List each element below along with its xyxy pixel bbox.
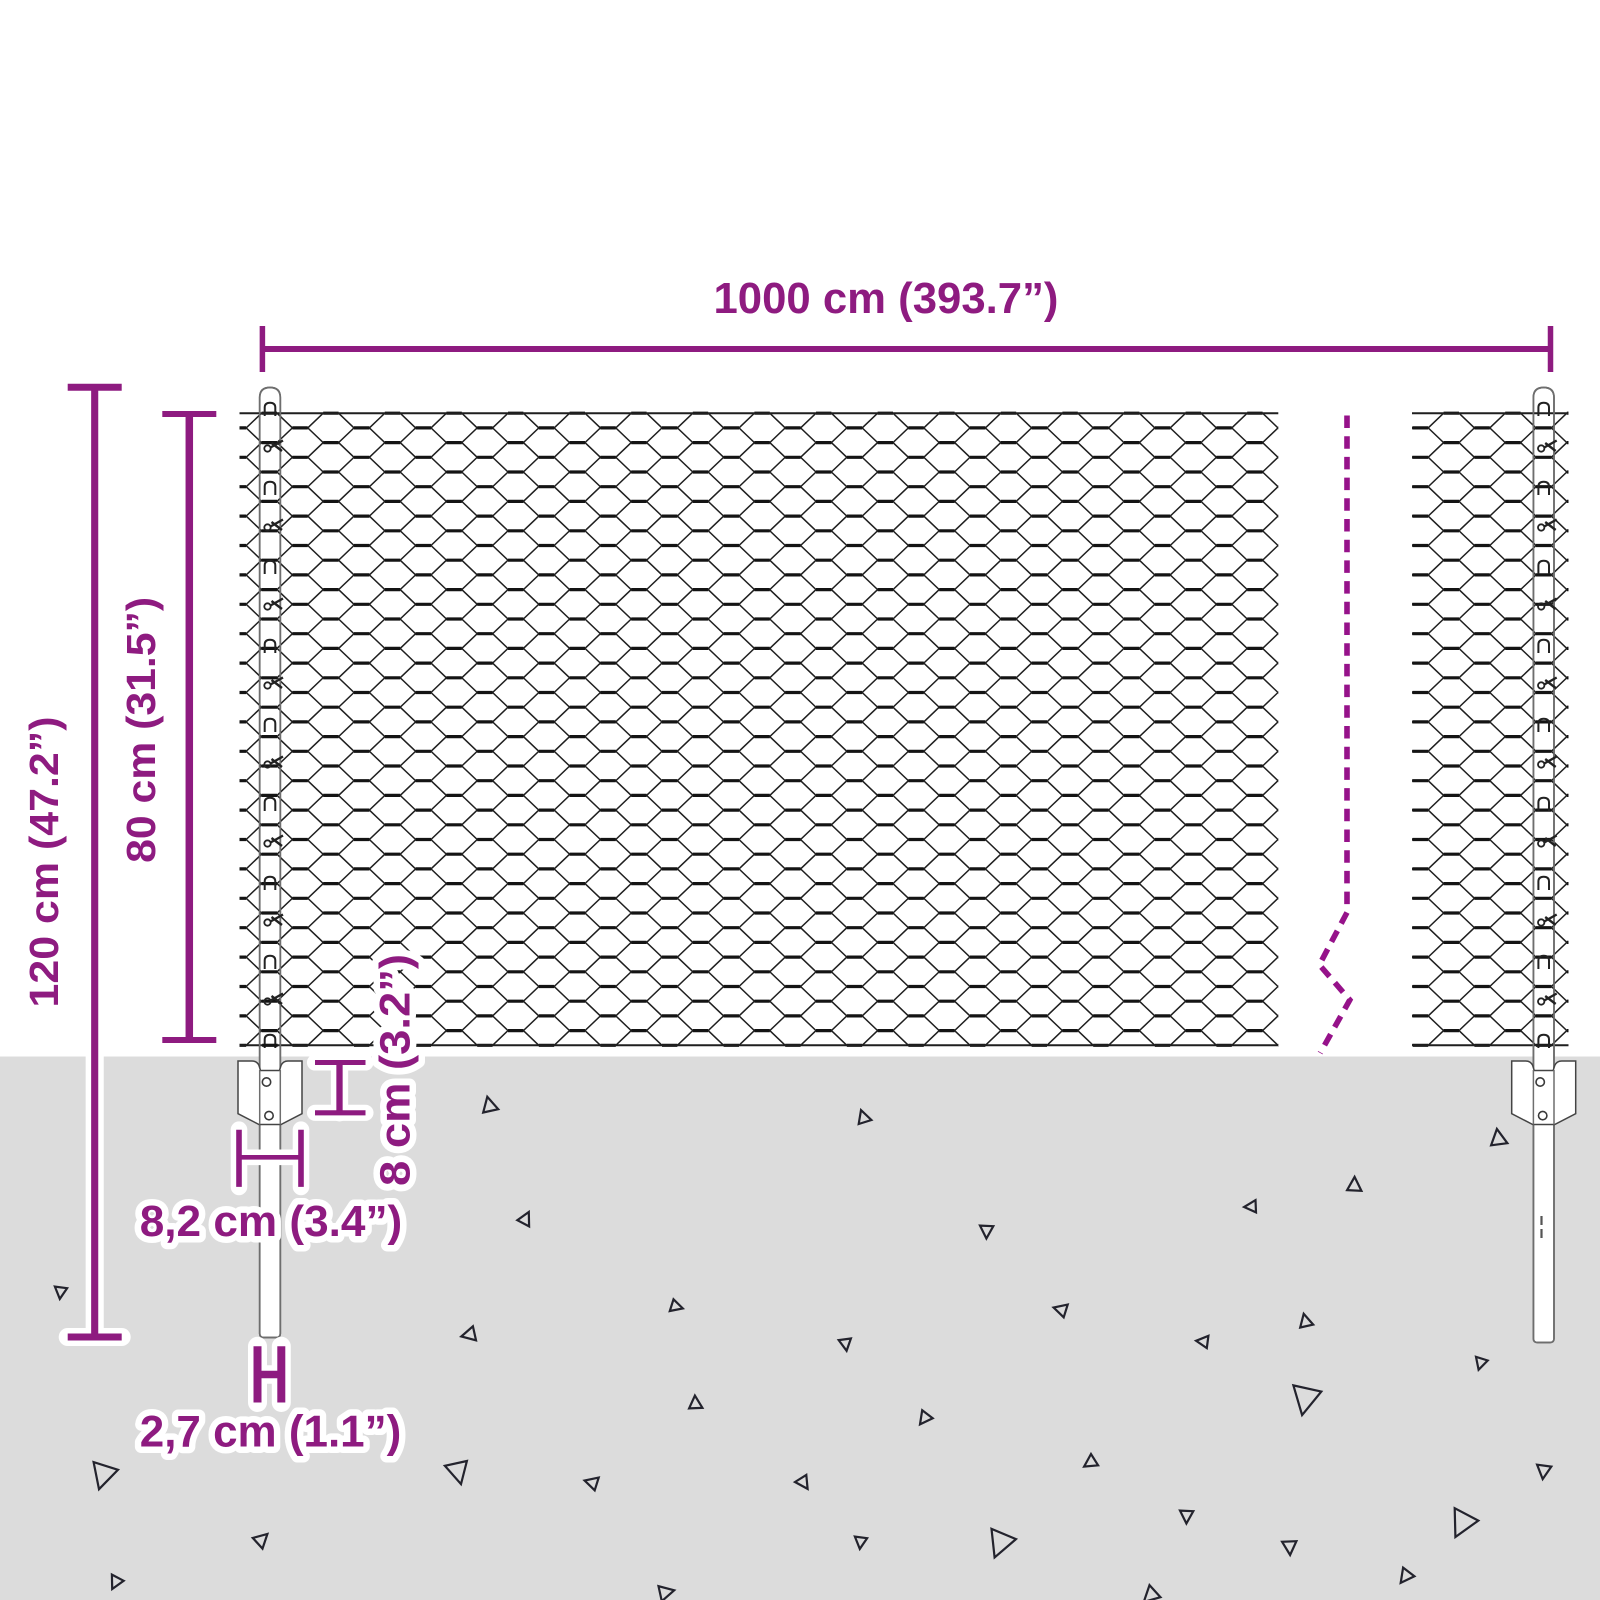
svg-text:1000 cm (393.7”): 1000 cm (393.7”) bbox=[714, 275, 1059, 323]
svg-text:2,7 cm (1.1”): 2,7 cm (1.1”) bbox=[140, 1406, 402, 1457]
svg-text:8 cm (3.2”): 8 cm (3.2”) bbox=[372, 954, 420, 1186]
svg-text:80 cm (31.5”): 80 cm (31.5”) bbox=[118, 597, 164, 863]
svg-text:8,2 cm (3.4”): 8,2 cm (3.4”) bbox=[140, 1197, 403, 1246]
svg-text:120 cm (47.2”): 120 cm (47.2”) bbox=[21, 717, 67, 1008]
